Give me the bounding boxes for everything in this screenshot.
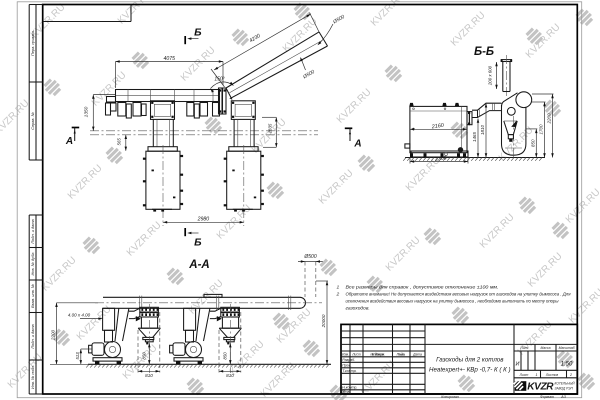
svg-text:1810: 1810 — [480, 124, 485, 135]
svg-text:Лит.: Лит. — [520, 346, 529, 350]
svg-text:2200: 2200 — [547, 113, 552, 125]
svg-text:Разраб.: Разраб. — [342, 358, 355, 362]
svg-text:Изм.: Изм. — [342, 352, 349, 356]
svg-text:М.Вахин: М.Вахин — [372, 353, 385, 357]
svg-text:850: 850 — [222, 352, 227, 360]
svg-text:200 x 600: 200 x 600 — [487, 65, 492, 86]
svg-text:2: 2 — [336, 292, 340, 298]
svg-text:1700: 1700 — [539, 124, 544, 135]
svg-text:1835: 1835 — [267, 123, 272, 133]
svg-text:850: 850 — [141, 352, 146, 360]
svg-text:А: А — [65, 136, 73, 147]
svg-text:Подп. и дата: Подп. и дата — [30, 218, 35, 243]
svg-text:И: И — [516, 362, 520, 368]
svg-text:исключения воздействия весовых: исключения воздействия весовых нагрузок … — [346, 298, 559, 305]
svg-text:4.00 x 4.00: 4.00 x 4.00 — [68, 313, 91, 318]
svg-text:Формат: Формат — [540, 395, 554, 399]
svg-text:513: 513 — [75, 352, 80, 360]
svg-text:Масса: Масса — [540, 346, 550, 350]
svg-text:20000: 20000 — [321, 314, 326, 328]
svg-text:Дата: Дата — [412, 352, 422, 356]
svg-text:Все размеры для справок , допу: Все размеры для справок , допустимое отк… — [346, 285, 499, 291]
svg-text:Справ. №: Справ. № — [30, 111, 35, 129]
svg-text:КОТЕЛЬНЫЙ: КОТЕЛЬНЫЙ — [555, 382, 576, 386]
svg-text:1465: 1465 — [472, 131, 477, 142]
svg-text:Газоходы для 2 котлов: Газоходы для 2 котлов — [436, 357, 504, 364]
svg-text:газоходов.: газоходов. — [346, 306, 370, 312]
svg-text:Н.контр.: Н.контр. — [342, 386, 357, 390]
svg-text:1: 1 — [536, 373, 538, 377]
svg-text:Т.контр.: Т.контр. — [342, 369, 357, 373]
svg-text:2: 2 — [569, 373, 572, 377]
svg-text:1350: 1350 — [84, 106, 90, 117]
svg-text:Лады: Лады — [397, 353, 405, 357]
svg-text:Лист: Лист — [351, 352, 361, 356]
svg-text:KVZR: KVZR — [527, 382, 554, 393]
svg-text:Масштаб: Масштаб — [559, 346, 575, 350]
svg-text:Листов: Листов — [545, 373, 559, 377]
svg-text:Инв. № дубл.: Инв. № дубл. — [30, 252, 35, 276]
svg-text:810: 810 — [145, 373, 153, 378]
svg-text:Б: Б — [194, 26, 202, 38]
svg-text:Взам. инв. №: Взам. инв. № — [30, 283, 35, 308]
svg-text:ЗАВОД РЭП: ЗАВОД РЭП — [555, 387, 574, 391]
svg-text:А-А: А-А — [188, 259, 209, 271]
svg-text:4075: 4075 — [163, 56, 175, 62]
svg-text:А: А — [353, 138, 361, 149]
svg-text:Инв. № подл.: Инв. № подл. — [30, 365, 35, 389]
svg-text:Heatexpert+- КВр -0,7- К ( К ): Heatexpert+- КВр -0,7- К ( К ) — [429, 366, 511, 373]
svg-text:Перв. примен.: Перв. примен. — [30, 30, 35, 56]
svg-text:810: 810 — [226, 373, 234, 378]
svg-text:1: 1 — [337, 285, 340, 291]
svg-text:Утв.: Утв. — [342, 390, 350, 394]
svg-text:Ø500: Ø500 — [303, 254, 316, 260]
svg-text:1:50: 1:50 — [561, 362, 573, 368]
svg-text:Копировал: Копировал — [441, 395, 458, 399]
svg-text:A3: A3 — [560, 395, 567, 399]
svg-text:Б-Б: Б-Б — [474, 46, 494, 58]
svg-text:Б: Б — [194, 236, 202, 248]
svg-text:565: 565 — [117, 138, 122, 146]
svg-text:Пров.: Пров. — [342, 364, 351, 368]
svg-text:Обратите внимание! Не допускае: Обратите внимание! Не допускается воздей… — [346, 291, 571, 298]
svg-text:Подп. и дата: Подп. и дата — [30, 323, 35, 348]
svg-text:2200: 2200 — [51, 329, 56, 341]
svg-text:850: 850 — [531, 139, 536, 147]
svg-text:2980: 2980 — [197, 216, 210, 222]
svg-text:Лист: Лист — [519, 373, 529, 377]
